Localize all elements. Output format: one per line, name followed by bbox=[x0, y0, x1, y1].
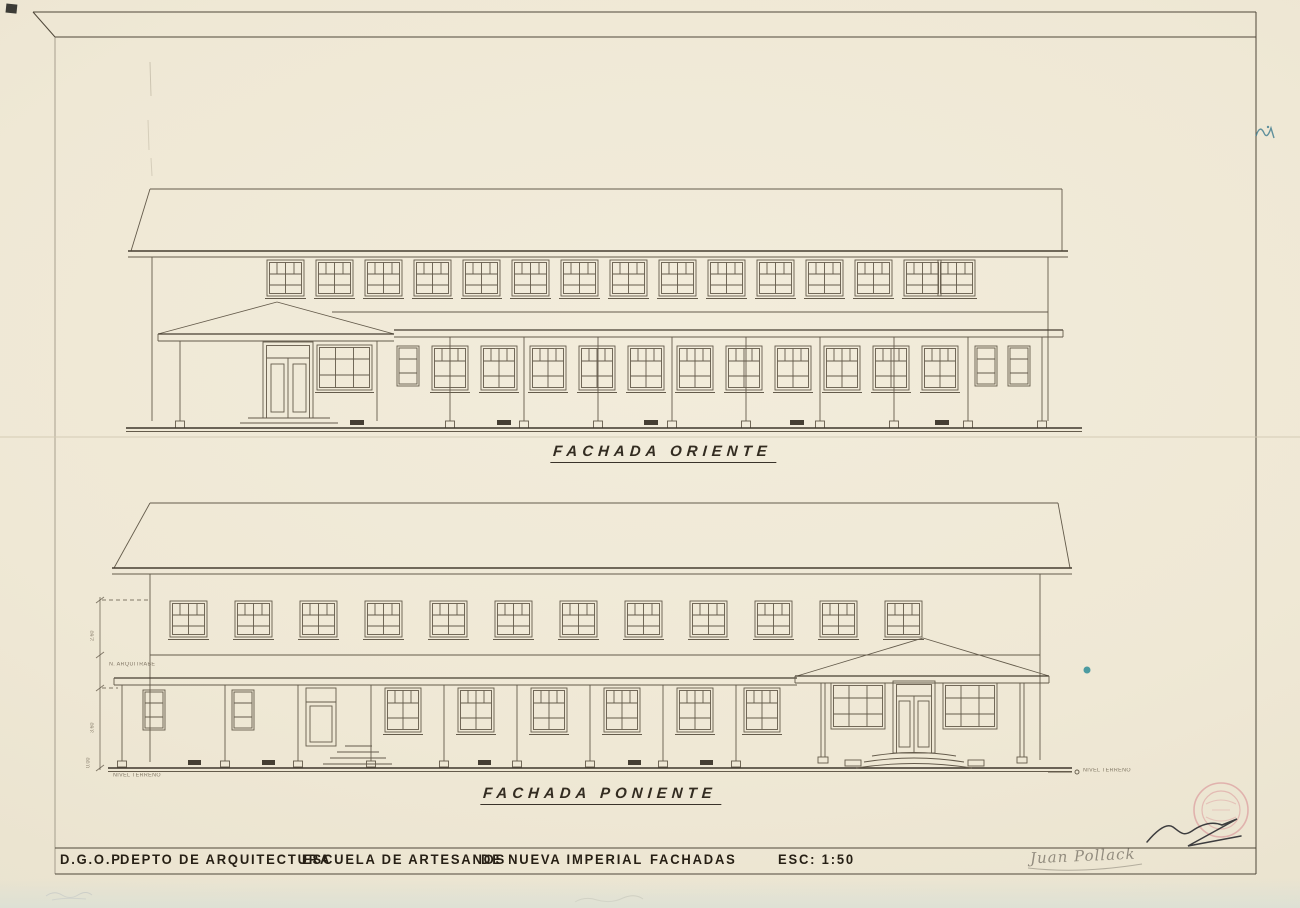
ink-signature bbox=[1147, 819, 1241, 846]
dimension-upper-storey: 2.60 bbox=[90, 630, 95, 641]
title-block-department: DEPTO DE ARQUITECTURA bbox=[120, 851, 331, 867]
note-ground-level-right: NIVEL TERRENO bbox=[1083, 768, 1131, 773]
porch-entrance-poniente bbox=[831, 681, 997, 768]
entrance-door-oriente bbox=[240, 342, 338, 423]
service-door-poniente bbox=[306, 688, 392, 764]
title-block-drawing: FACHADAS bbox=[650, 851, 737, 867]
dimension-line-left bbox=[96, 597, 150, 771]
windows-ground-poniente bbox=[143, 688, 782, 735]
ground-level-reference-right bbox=[1048, 770, 1079, 774]
dimension-datum-zero: 0.00 bbox=[86, 757, 91, 768]
foundation-vents-oriente bbox=[350, 420, 949, 425]
scan-artifact-marks bbox=[6, 3, 152, 176]
windows-upper-poniente bbox=[168, 601, 924, 640]
windows-upper-oriente bbox=[265, 260, 977, 299]
title-block-location: DE NUEVA IMPERIAL bbox=[481, 851, 643, 867]
teal-check-dot bbox=[1084, 667, 1091, 674]
title-block-org: D.G.O.P. bbox=[60, 851, 125, 867]
foundation-vents-poniente bbox=[188, 760, 713, 765]
verandah-posts-poniente bbox=[118, 685, 741, 767]
title-block-project: ESCUELA DE ARTESANOS bbox=[302, 851, 506, 867]
elevation-title-poniente: FACHADA PONIENTE bbox=[480, 785, 722, 805]
elevation-title-oriente: FACHADA ORIENTE bbox=[550, 443, 777, 463]
facade-oriente bbox=[126, 189, 1082, 432]
approval-stamp bbox=[1194, 783, 1248, 837]
windows-ground-oriente bbox=[315, 345, 1030, 393]
drawing-sheet: FACHADA ORIENTE FACHADA PONIENTE D.G.O.P… bbox=[0, 0, 1300, 908]
facade-poniente bbox=[96, 503, 1091, 774]
dimension-lower-storey: 3.60 bbox=[90, 722, 95, 733]
title-block-scale: ESC: 1:50 bbox=[778, 851, 855, 867]
note-architrave-level: N. ARQUITRABE bbox=[109, 662, 155, 667]
blue-archive-mark-right-edge bbox=[1256, 126, 1274, 138]
pencil-squiggle-bottom-centre bbox=[575, 896, 643, 902]
note-ground-level-left: NIVEL TERRENO bbox=[113, 773, 161, 778]
faint-blue-mark-bottom-left bbox=[46, 893, 92, 901]
